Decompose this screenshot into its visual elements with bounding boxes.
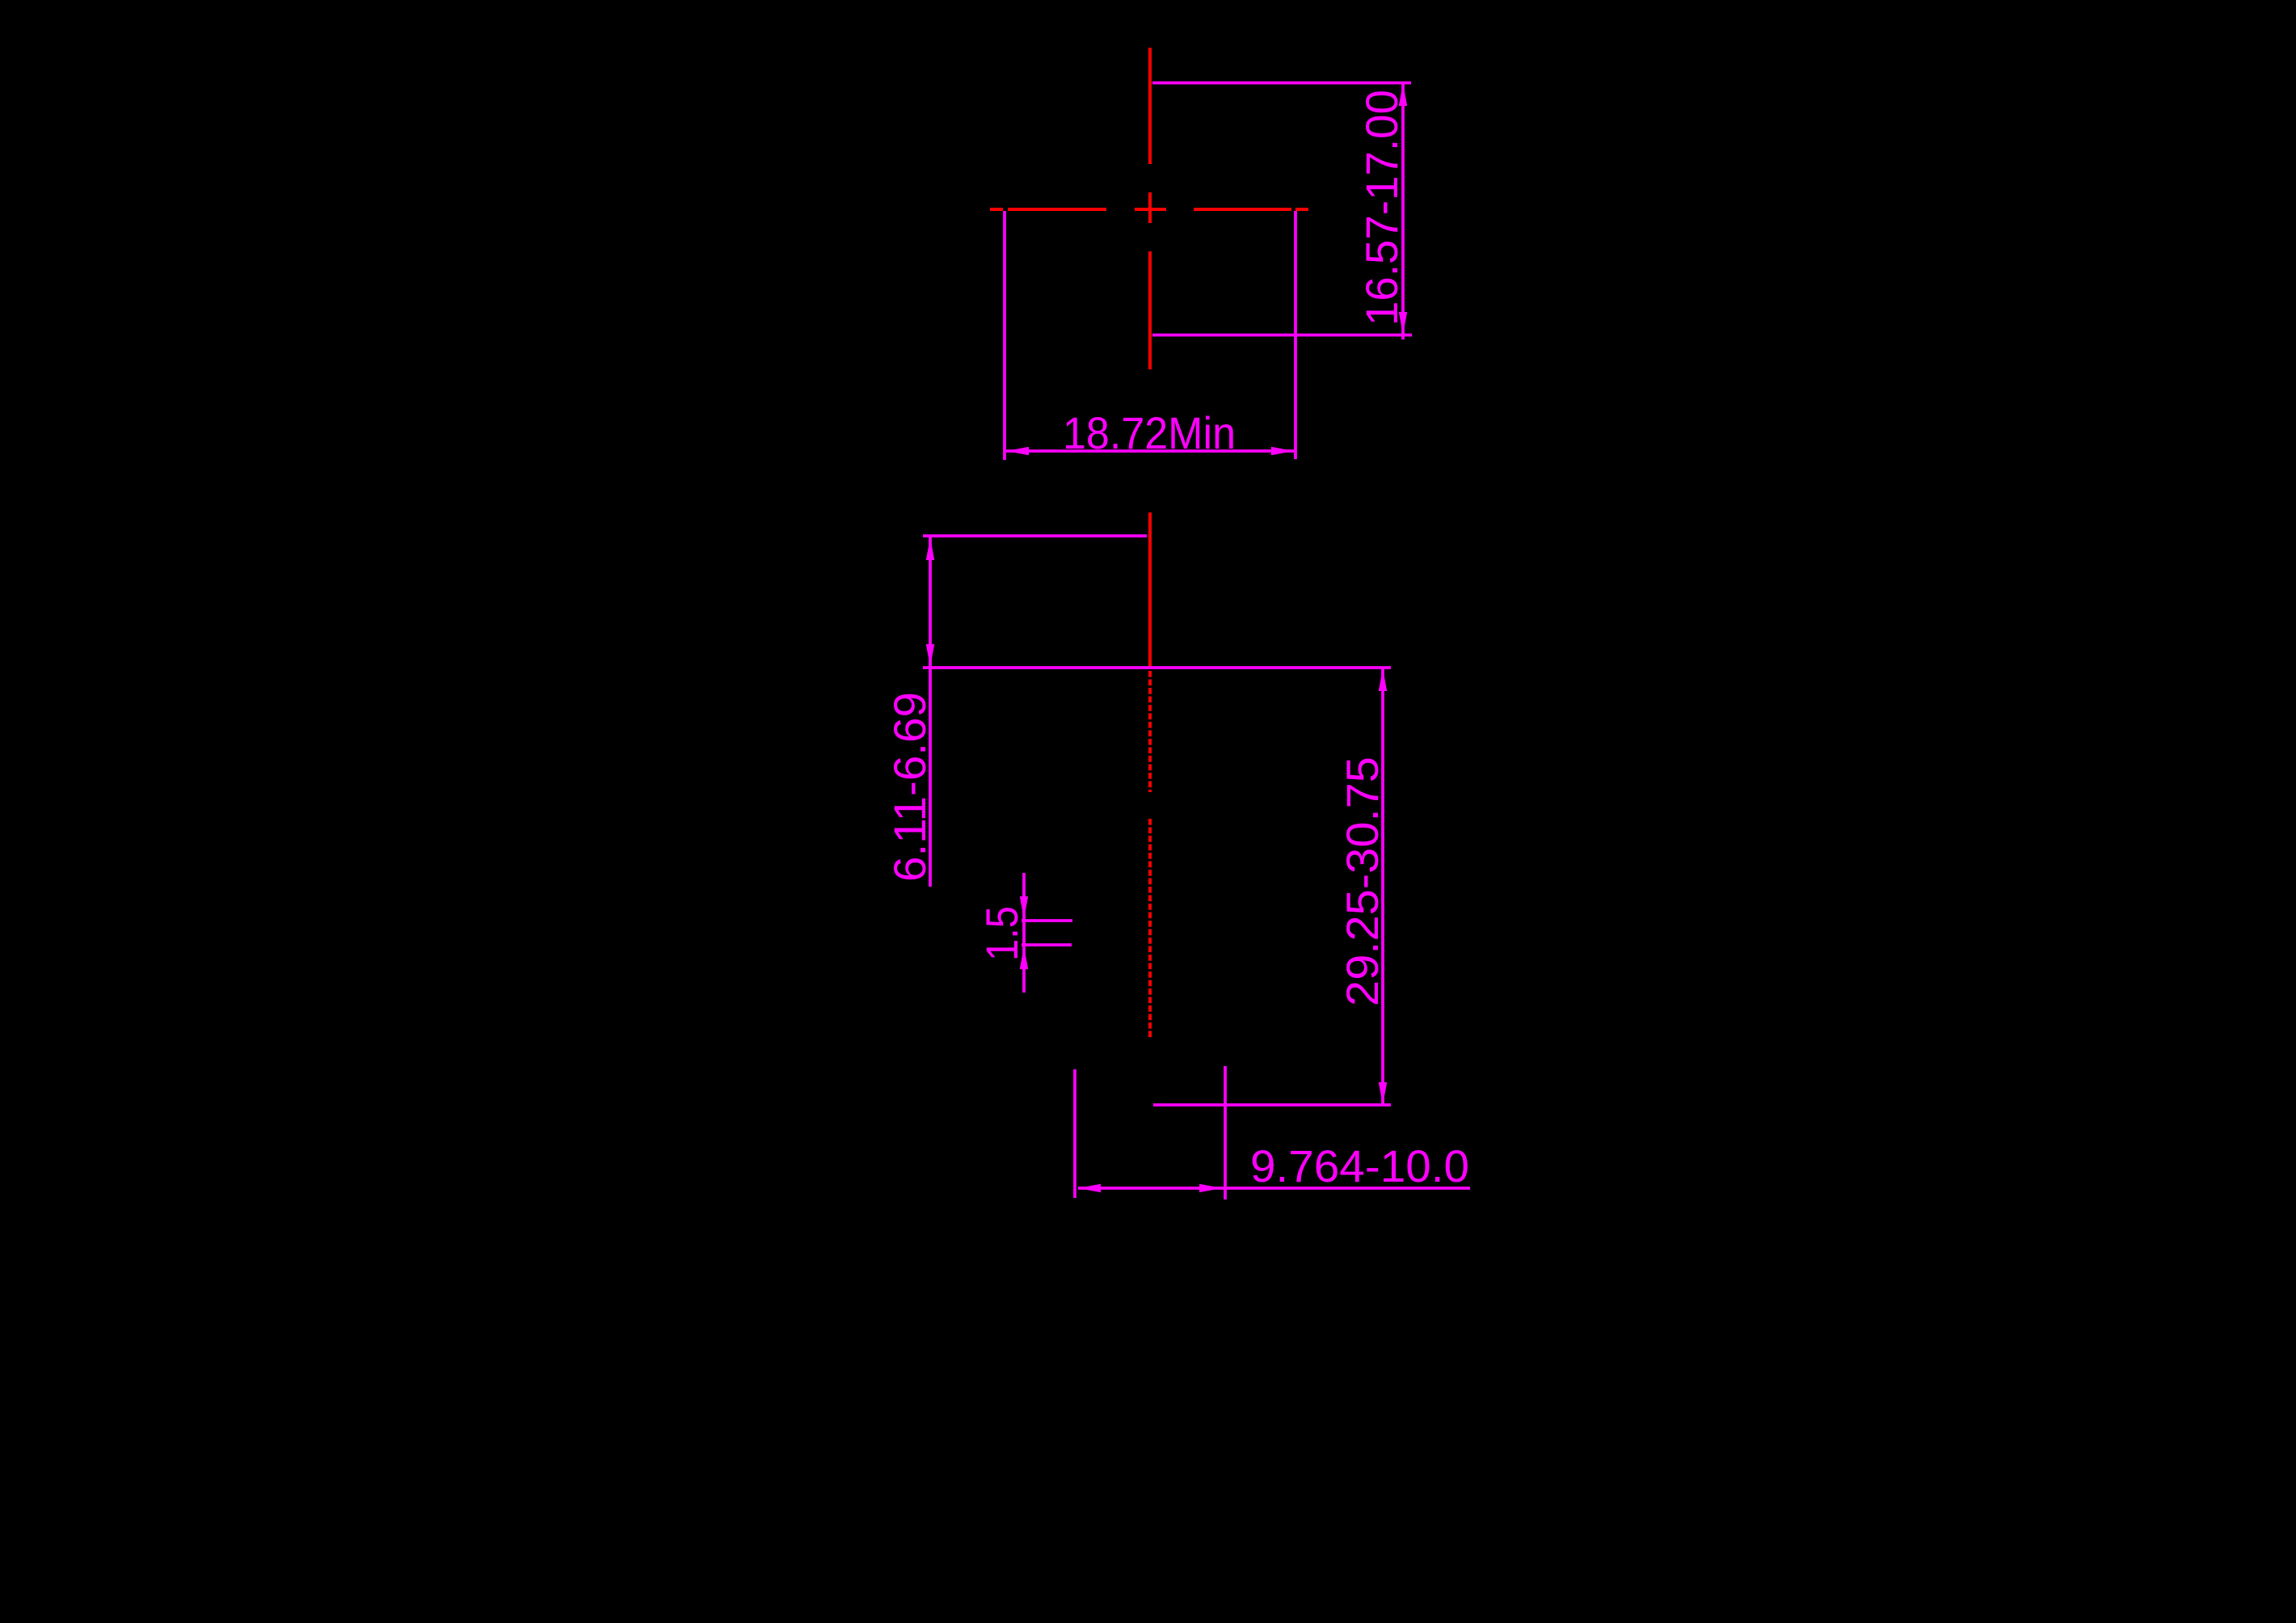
svg-text:18.72Min: 18.72Min — [1063, 407, 1236, 458]
svg-text:6.11-6.69: 6.11-6.69 — [884, 692, 935, 882]
svg-text:16.57-17.00: 16.57-17.00 — [1356, 90, 1407, 326]
svg-text:9.764-10.0: 9.764-10.0 — [1250, 1140, 1469, 1191]
svg-text:29.25-30.75: 29.25-30.75 — [1337, 757, 1388, 1006]
svg-text:1.5: 1.5 — [976, 906, 1027, 961]
